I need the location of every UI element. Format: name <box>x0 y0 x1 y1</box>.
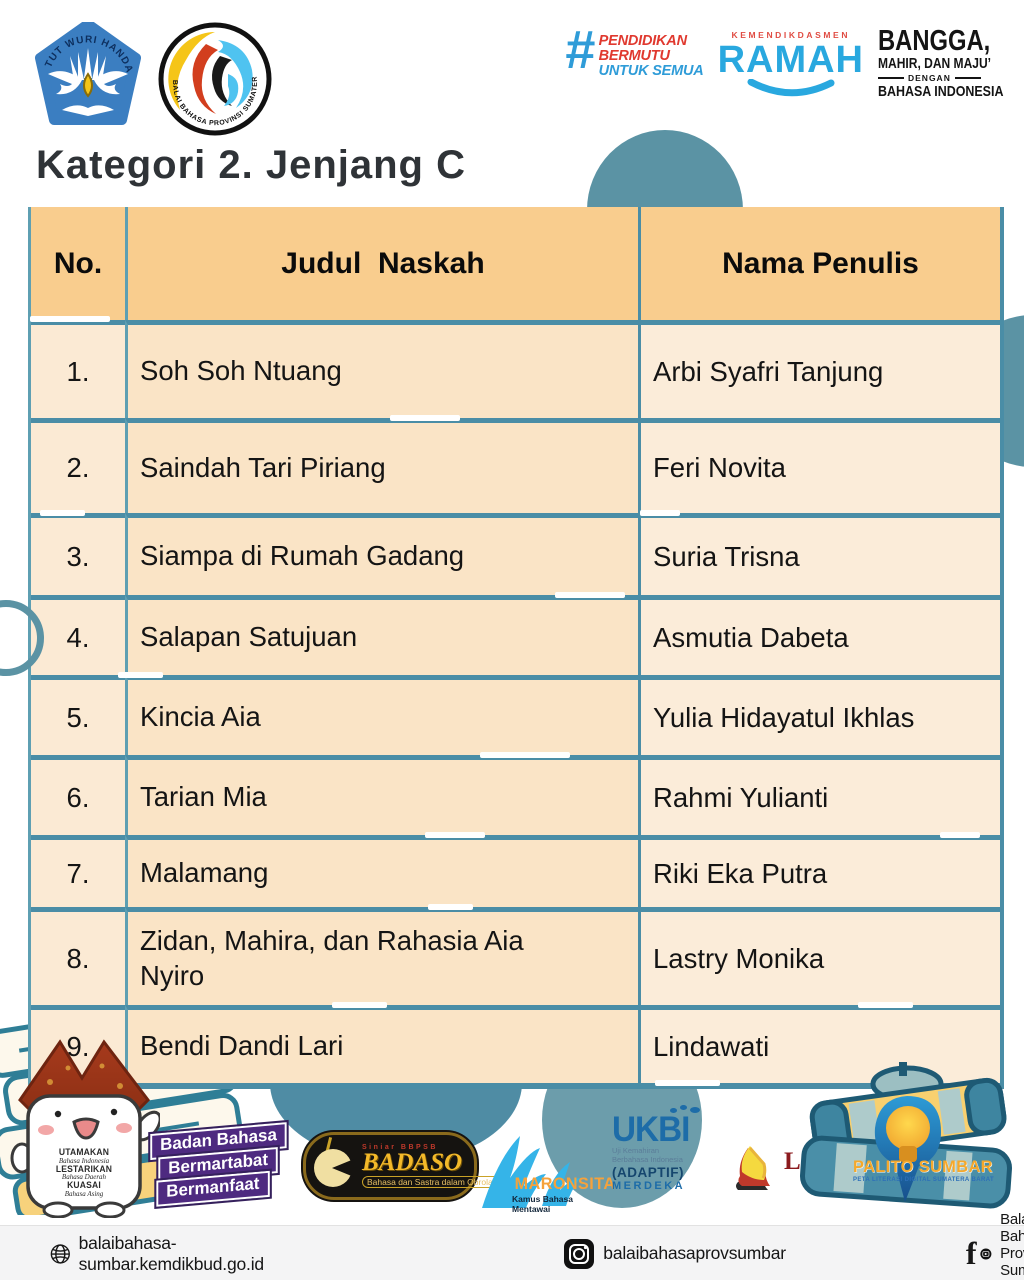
border-gap <box>858 1002 913 1008</box>
border-gap <box>425 832 485 838</box>
cell-penulis: Yulia Hidayatul Ikhlas <box>638 675 1000 755</box>
kemendikdasmen-ramah-logo: KEMENDIKDASMEN RAMAH <box>718 30 864 99</box>
poster-page: TUT WURI HANDAYANI BALAI BAHASA PROVINSI… <box>0 0 1024 1280</box>
maronsita-name: MARONSITA <box>515 1174 616 1194</box>
footer-bar: balaibahasa-sumbar.kemdikbud.go.id balai… <box>0 1225 1024 1280</box>
cell-penulis: Arbi Syafri Tanjung <box>638 320 1000 418</box>
footer-website[interactable]: balaibahasa-sumbar.kemdikbud.go.id <box>50 1233 273 1275</box>
cell-judul: Kincia Aia <box>125 675 638 755</box>
instagram-icon <box>563 1238 595 1270</box>
footer-instagram[interactable]: balaibahasaprovsumbar <box>563 1238 786 1270</box>
border-gap <box>655 1080 720 1086</box>
cell-penulis: Feri Novita <box>638 418 1000 513</box>
border-gap <box>390 415 460 421</box>
cell-judul: Soh Soh Ntuang <box>125 320 638 418</box>
books-bulb-icon <box>795 1062 1024 1222</box>
bahasa-indonesia-text: BAHASA INDONESIA <box>878 84 988 100</box>
palito-sumbar-logo: PALITO SUMBAR PETA LITERASI DIGITAL SUMA… <box>795 1062 1024 1222</box>
cell-no: 7. <box>31 835 125 907</box>
instagram-text[interactable]: balaibahasaprovsumbar <box>603 1243 786 1264</box>
border-gap <box>332 1002 387 1008</box>
border-gap <box>118 672 163 678</box>
pendidikan-bermutu-logo: # PENDIDIKAN BERMUTU UNTUK SEMUA <box>565 28 704 80</box>
bahasa-asing-text: Bahasa Asing <box>34 1191 134 1198</box>
column-header-penulis: Nama Penulis <box>638 207 1000 320</box>
utamakan-text: UTAMAKAN <box>39 1148 129 1158</box>
cell-no: 5. <box>31 675 125 755</box>
pendidikan-text: PENDIDIKAN <box>599 34 704 49</box>
social-text[interactable]: Balai Bahasa Provinsi Sumatera Barat <box>1000 1211 1024 1280</box>
cell-judul: Salapan Satujuan <box>125 595 638 675</box>
column-header-judul: Judul Naskah <box>125 207 638 320</box>
maronsita-logo: MARONSITA Kamus Bahasa Mentawai <box>480 1118 610 1218</box>
header-logos: TUT WURI HANDAYANI BALAI BAHASA PROVINSI… <box>34 22 272 136</box>
footer-social[interactable]: f Balai Bahasa Provinsi Sumatera Barat <box>966 1211 1024 1280</box>
ramah-text: RAMAH <box>718 41 864 79</box>
border-gap <box>30 316 110 322</box>
pacman-satay-icon <box>310 1141 360 1191</box>
cell-judul: Saindah Tari Piriang <box>125 418 638 513</box>
dengan-text: DENGAN <box>908 73 951 83</box>
results-table: No. Judul Naskah Nama Penulis 1. Soh Soh… <box>28 207 1004 1089</box>
palito-tagline: PETA LITERASI DIGITAL SUMATERA BARAT <box>853 1177 994 1183</box>
tut-wuri-handayani-logo: TUT WURI HANDAYANI <box>34 22 142 134</box>
mascot-eye <box>55 1111 61 1117</box>
lestarikan-text: LESTARIKAN <box>39 1165 129 1175</box>
cell-judul: Bendi Dandi Lari <box>125 1005 638 1083</box>
cell-penulis: Riki Eka Putra <box>638 835 1000 907</box>
maronsita-tagline: Kamus Bahasa Mentawai <box>512 1194 610 1214</box>
border-gap <box>940 832 980 838</box>
ramah-smile-icon <box>743 79 839 99</box>
page-title: Kategori 2. Jenjang C <box>36 143 466 188</box>
badaso-logo: Siniar BBPSB BADASO Bahasa dan Sastra da… <box>303 1132 477 1200</box>
mascot-eye <box>111 1109 117 1115</box>
youtube-icon <box>980 1237 992 1271</box>
cell-no: 6. <box>31 755 125 835</box>
mascot-cheek <box>116 1123 132 1133</box>
cell-judul: Malamang <box>125 835 638 907</box>
mascot-cheek <box>38 1125 54 1135</box>
border-gap <box>640 510 680 516</box>
cell-no: 3. <box>31 513 125 595</box>
globe-icon <box>50 1239 71 1269</box>
website-text[interactable]: balaibahasa-sumbar.kemdikbud.go.id <box>79 1233 274 1275</box>
bangga-mahir-logo: BANGGA, MAHIR, DAN MAJU’ DENGAN BAHASA I… <box>878 28 1010 100</box>
cell-penulis: Rahmi Yulianti <box>638 755 1000 835</box>
balai-bahasa-sumbar-logo: BALAI BAHASA PROVINSI SUMATERA BARAT <box>158 22 272 136</box>
cell-judul: Siampa di Rumah Gadang <box>125 513 638 595</box>
cell-no: 8. <box>31 907 125 1005</box>
palito-name: PALITO SUMBAR <box>853 1158 994 1177</box>
cell-penulis: Lastry Monika <box>638 907 1000 1005</box>
cell-judul: Tarian Mia <box>125 755 638 835</box>
campaign-lockups: # PENDIDIKAN BERMUTU UNTUK SEMUA KEMENDI… <box>565 28 1010 100</box>
book-icon <box>728 1136 790 1198</box>
hashtag-icon: # <box>565 28 595 74</box>
cell-penulis: Asmutia Dabeta <box>638 595 1000 675</box>
border-gap <box>40 510 85 516</box>
cell-penulis: Suria Trisna <box>638 513 1000 595</box>
ukbi-name: UKBI <box>612 1113 717 1146</box>
border-gap <box>480 752 570 758</box>
dash-left <box>878 77 904 79</box>
cell-judul: Zidan, Mahira, dan Rahasia Aia Nyiro <box>125 907 638 1005</box>
untuk-semua-text: UNTUK SEMUA <box>599 64 704 79</box>
mascot-slogan: UTAMAKAN Bahasa Indonesia LESTARIKAN Bah… <box>34 1148 134 1198</box>
mascot-cat: UTAMAKAN Bahasa Indonesia LESTARIKAN Bah… <box>10 1038 160 1218</box>
bermutu-text: BERMUTU <box>599 49 704 64</box>
ukbi-merdeka: MERDEKA <box>612 1180 722 1192</box>
cell-no: 2. <box>31 418 125 513</box>
kuasai-text: KUASAI <box>39 1181 129 1191</box>
badan-bahasa-logo: Badan Bahasa Bermartabat Bermanfaat <box>149 1122 292 1207</box>
cell-no: 1. <box>31 320 125 418</box>
dash-right <box>955 77 981 79</box>
border-gap <box>555 592 625 598</box>
cell-no: 4. <box>31 595 125 675</box>
column-header-no: No. <box>31 207 125 320</box>
ukbi-logo: UKBI Uji Kemahiran Berbahasa Indonesia (… <box>612 1108 722 1192</box>
facebook-icon: f <box>966 1241 976 1267</box>
mahir-text: MAHIR, DAN MAJU’ <box>878 56 988 73</box>
ukbi-adaptif: (ADAPTIF) <box>612 1165 722 1180</box>
bangga-text: BANGGA, <box>878 28 986 56</box>
border-gap <box>428 904 473 910</box>
ukbi-sub2: Berbahasa Indonesia <box>612 1155 683 1164</box>
